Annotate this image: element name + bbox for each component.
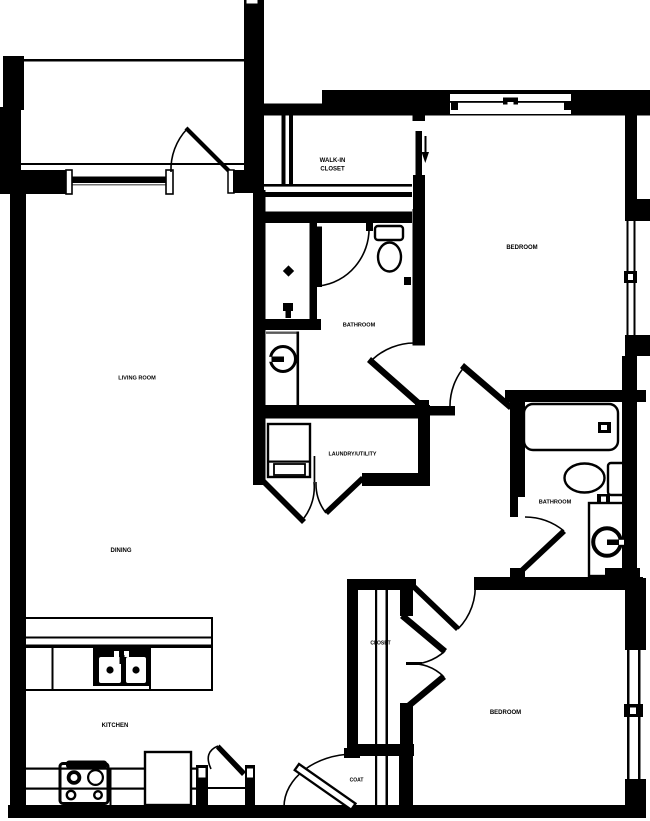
svg-text:LAUNDRY/UTILITY: LAUNDRY/UTILITY [328,452,376,458]
svg-text:CLOSET: CLOSET [320,167,345,173]
svg-text:KITCHEN: KITCHEN [102,723,129,729]
svg-text:BATHROOM: BATHROOM [343,323,376,329]
svg-text:DINING: DINING [111,548,132,554]
svg-text:WALK-IN: WALK-IN [320,158,346,164]
svg-text:LIVING ROOM: LIVING ROOM [118,376,156,382]
svg-text:BEDROOM: BEDROOM [490,710,521,716]
svg-text:BEDROOM: BEDROOM [506,245,537,251]
svg-text:BATHROOM: BATHROOM [539,500,572,506]
svg-text:COAT: COAT [350,778,364,784]
